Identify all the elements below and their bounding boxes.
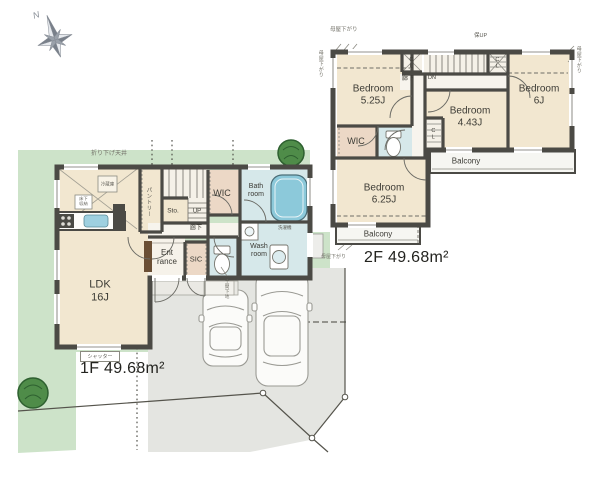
- room-ldk: [57, 167, 150, 347]
- shoe-cabinet: [144, 241, 152, 272]
- room-bedroom625: [337, 158, 428, 225]
- balcony-side: [430, 150, 575, 173]
- room-pantry: [140, 167, 162, 232]
- compass-rose: [30, 10, 78, 63]
- kitchen-stove: [59, 214, 74, 228]
- floor-plan-page: N 折り下げ天井 冷蔵庫 床下収納 パントリー Sto. UP 廊下 WIC B…: [0, 0, 600, 477]
- underfloor-storage-box: [75, 195, 92, 209]
- toilet2-icon: [386, 131, 401, 157]
- vanity-icon: [241, 223, 258, 240]
- room-storage: [162, 198, 188, 223]
- toilet1-icon: [214, 246, 230, 274]
- washing-machine-icon: [270, 245, 288, 269]
- tree-top: [278, 140, 304, 166]
- floor2-plan: [330, 44, 575, 250]
- shutter-box: シャッター: [80, 351, 120, 362]
- room-wic1: [208, 170, 240, 215]
- kitchen-sink: [84, 215, 108, 227]
- room-sic: [185, 242, 208, 278]
- room-bedroom6: [508, 52, 572, 150]
- car-large: [252, 272, 312, 386]
- floor-plan-drawing: [0, 0, 600, 477]
- bathtub: [271, 175, 307, 221]
- porch-steps: [150, 281, 238, 295]
- room-hall2-corridor: [412, 90, 425, 158]
- car-small: [199, 290, 252, 366]
- room-hall2: [400, 74, 508, 90]
- tree-bottom: [18, 378, 48, 408]
- room-wic2: [337, 126, 377, 158]
- room-stairs1-lower: [188, 198, 207, 223]
- room-cl-c: [425, 118, 443, 150]
- refrigerator-box: [98, 176, 117, 192]
